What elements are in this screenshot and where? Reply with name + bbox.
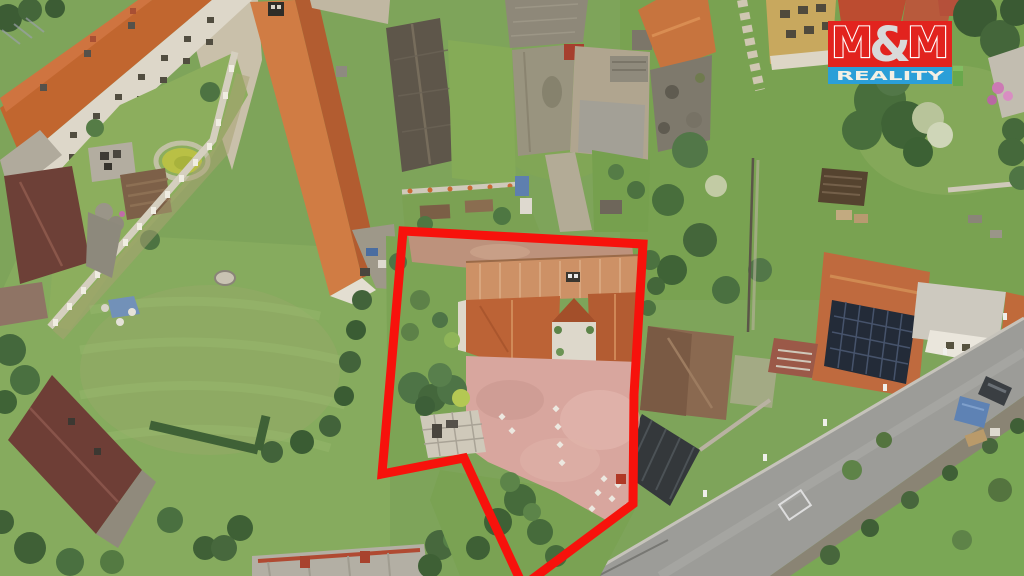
aerial-listing-photo: M M & REALITY [0,0,1024,576]
logo-m-left: M [831,18,873,67]
greenhouse [768,338,818,378]
parked-vehicle [515,176,529,196]
logo-ampersand: & [869,17,911,73]
blossom-bush [705,175,727,197]
utility-box [616,474,626,484]
chimney [268,2,284,16]
agency-logo: M M & REALITY [828,17,963,86]
yellow-bush [452,389,470,407]
aerial-photo: M M & REALITY [0,0,1024,576]
logo-m-right: M [907,18,949,67]
logo-subtitle: REALITY [836,69,945,83]
